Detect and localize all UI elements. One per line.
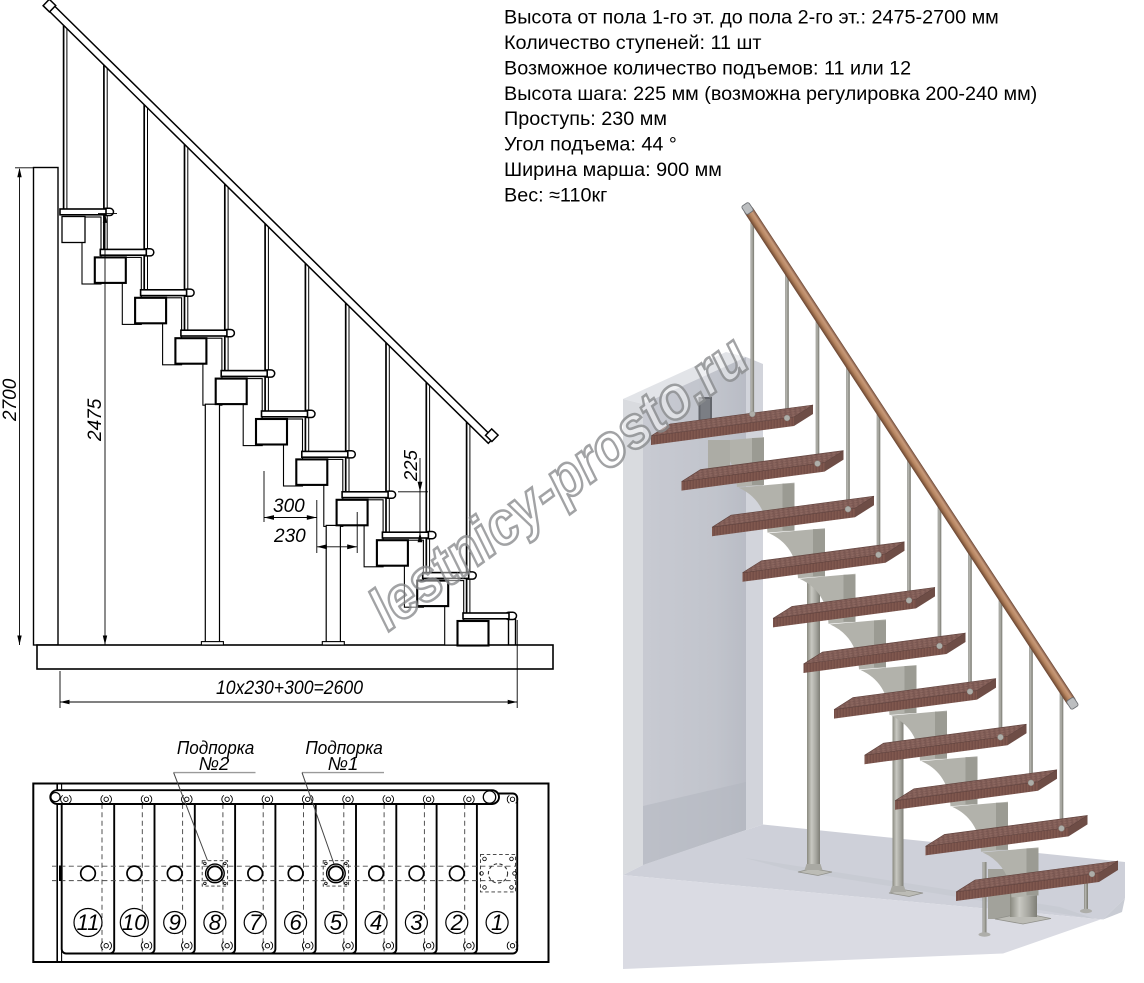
- svg-text:№2: №2: [199, 753, 230, 774]
- svg-text:230: 230: [273, 526, 306, 547]
- svg-text:2700: 2700: [0, 378, 21, 422]
- svg-text:№1: №1: [328, 753, 359, 774]
- svg-text:10x230+300=2600: 10x230+300=2600: [216, 677, 363, 699]
- svg-text:3: 3: [410, 910, 423, 935]
- svg-text:4: 4: [370, 910, 382, 935]
- svg-text:225: 225: [400, 449, 421, 482]
- svg-text:300: 300: [273, 496, 305, 517]
- svg-text:1: 1: [491, 910, 503, 935]
- svg-text:Ширина марша: 900 мм: Ширина марша: 900 мм: [504, 159, 722, 181]
- svg-text:2475: 2475: [85, 398, 106, 442]
- svg-text:Возможное количество подъемов:: Возможное количество подъемов: 11 или 12: [504, 57, 911, 79]
- svg-text:Вес: ≈110кг: Вес: ≈110кг: [504, 184, 607, 206]
- svg-text:Высота от пола 1-го эт. до пол: Высота от пола 1-го эт. до пола 2-го эт.…: [504, 7, 999, 29]
- svg-text:10: 10: [122, 910, 147, 935]
- svg-text:6: 6: [289, 910, 302, 935]
- svg-text:7: 7: [249, 910, 262, 935]
- svg-text:5: 5: [330, 910, 343, 935]
- svg-text:Высота шага: 225 мм (возможна: Высота шага: 225 мм (возможна регулировк…: [504, 83, 1037, 105]
- svg-text:11: 11: [77, 910, 100, 935]
- svg-text:Проступь: 230 мм: Проступь: 230 мм: [504, 108, 667, 130]
- svg-text:8: 8: [209, 910, 222, 935]
- svg-text:9: 9: [169, 910, 181, 935]
- svg-text:Угол подъема: 44 °: Угол подъема: 44 °: [504, 134, 677, 156]
- svg-text:Количество ступеней: 11 шт: Количество ступеней: 11 шт: [504, 32, 761, 54]
- svg-text:2: 2: [450, 910, 463, 935]
